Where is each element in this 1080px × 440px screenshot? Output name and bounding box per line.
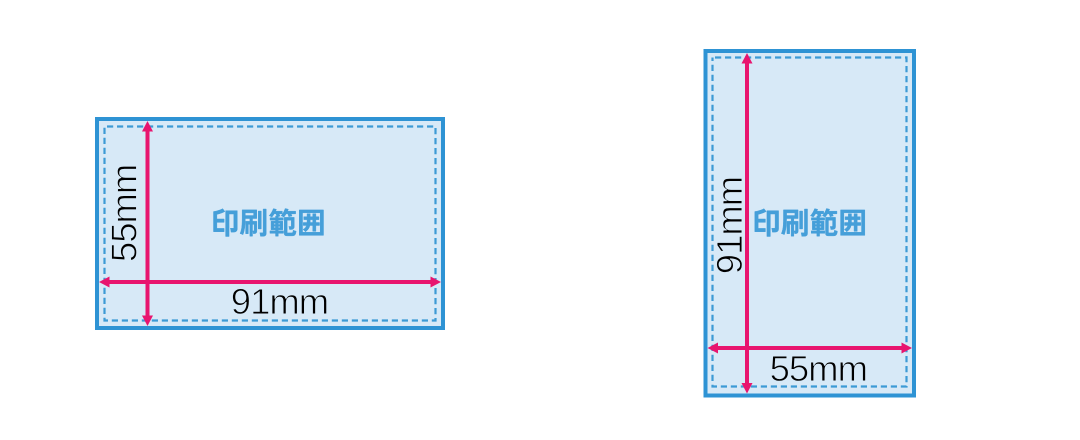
svg-text:91mm: 91mm	[231, 281, 328, 322]
svg-text:55mm: 55mm	[770, 348, 867, 389]
svg-text:91mm: 91mm	[709, 177, 750, 274]
svg-text:55mm: 55mm	[104, 165, 145, 262]
